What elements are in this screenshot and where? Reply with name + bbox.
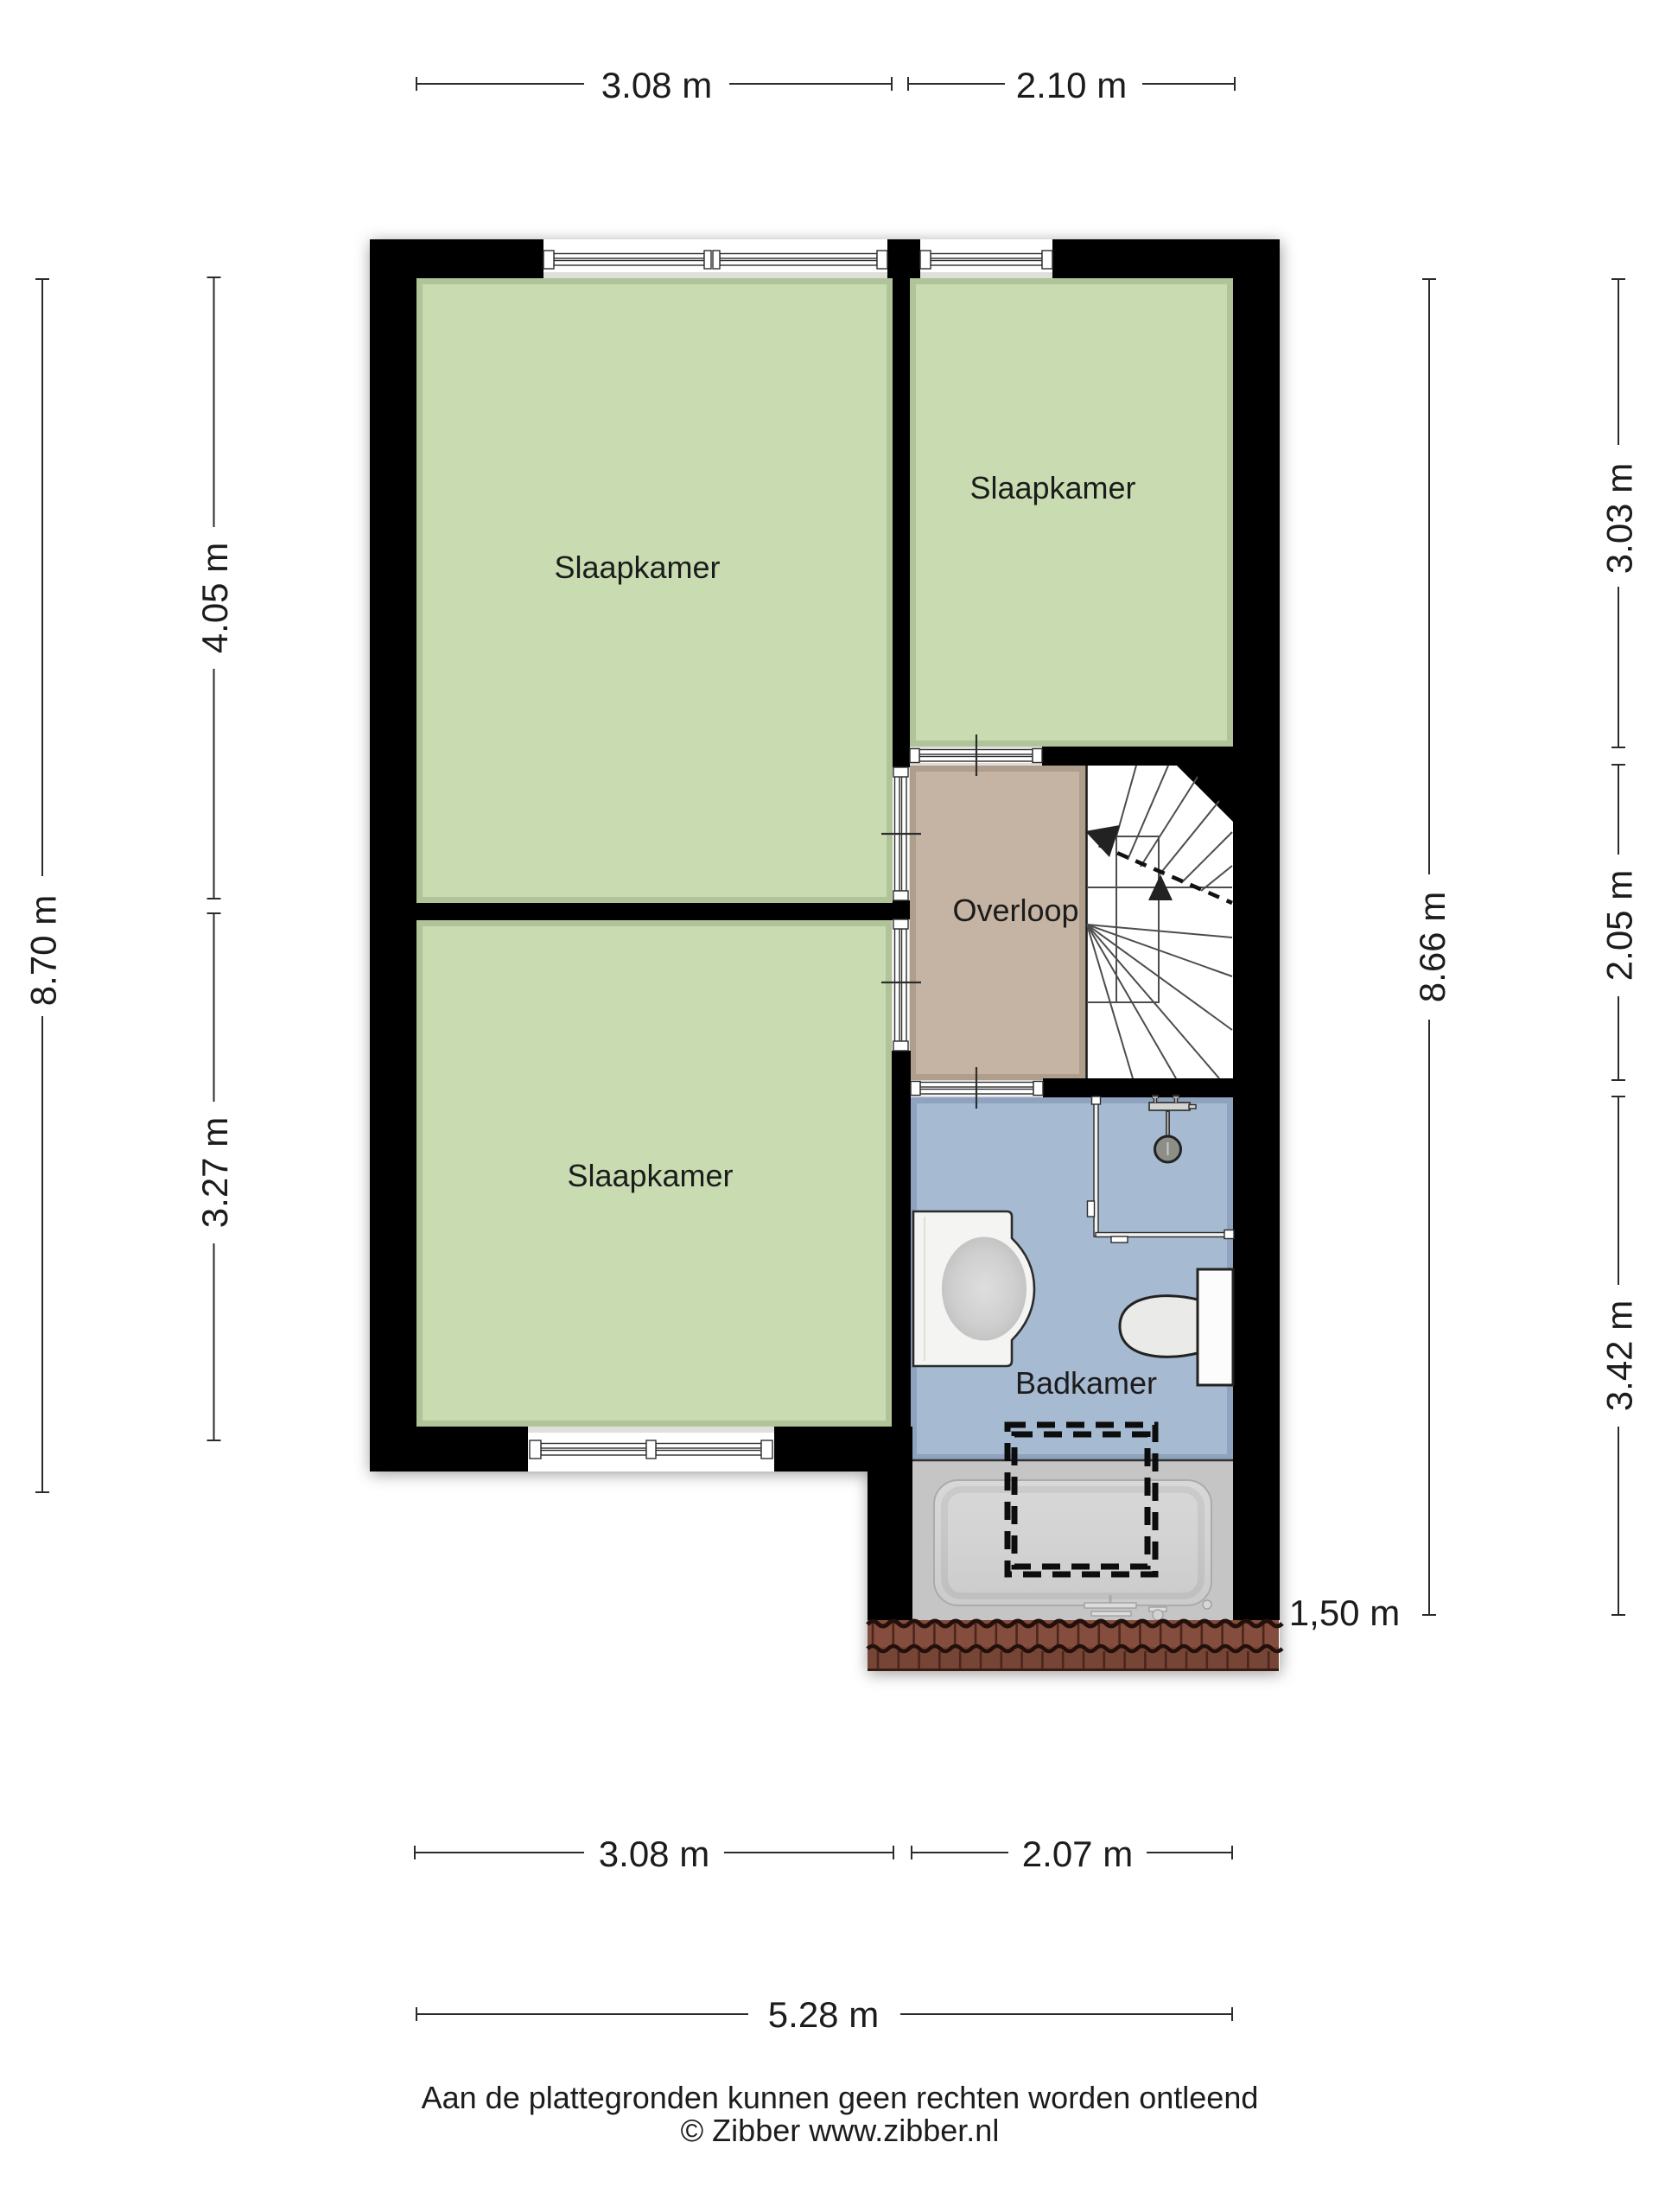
svg-text:© Zibber www.zibber.nl: © Zibber www.zibber.nl bbox=[681, 2113, 1000, 2148]
svg-text:3.27 m: 3.27 m bbox=[194, 1117, 235, 1228]
svg-text:3.08 m: 3.08 m bbox=[599, 1834, 709, 1874]
svg-text:1,50 m: 1,50 m bbox=[1289, 1592, 1400, 1633]
svg-text:Overloop: Overloop bbox=[952, 893, 1078, 928]
svg-text:3.03 m: 3.03 m bbox=[1599, 463, 1639, 574]
svg-text:2.10 m: 2.10 m bbox=[1016, 65, 1127, 105]
svg-text:8.66 m: 8.66 m bbox=[1412, 892, 1452, 1002]
svg-text:2.07 m: 2.07 m bbox=[1022, 1834, 1133, 1874]
svg-text:Aan de plattegronden kunnen ge: Aan de plattegronden kunnen geen rechten… bbox=[422, 2080, 1259, 2115]
svg-text:3.42 m: 3.42 m bbox=[1599, 1300, 1639, 1411]
svg-text:5.28 m: 5.28 m bbox=[768, 1994, 879, 2035]
svg-text:3.08 m: 3.08 m bbox=[601, 65, 712, 105]
svg-text:Slaapkamer: Slaapkamer bbox=[554, 550, 720, 585]
svg-text:8.70 m: 8.70 m bbox=[23, 895, 64, 1006]
svg-text:4.05 m: 4.05 m bbox=[194, 543, 235, 653]
svg-text:Slaapkamer: Slaapkamer bbox=[567, 1158, 733, 1193]
svg-text:2.05 m: 2.05 m bbox=[1599, 870, 1639, 981]
svg-text:Slaapkamer: Slaapkamer bbox=[969, 470, 1135, 505]
svg-text:Badkamer: Badkamer bbox=[1015, 1365, 1157, 1401]
